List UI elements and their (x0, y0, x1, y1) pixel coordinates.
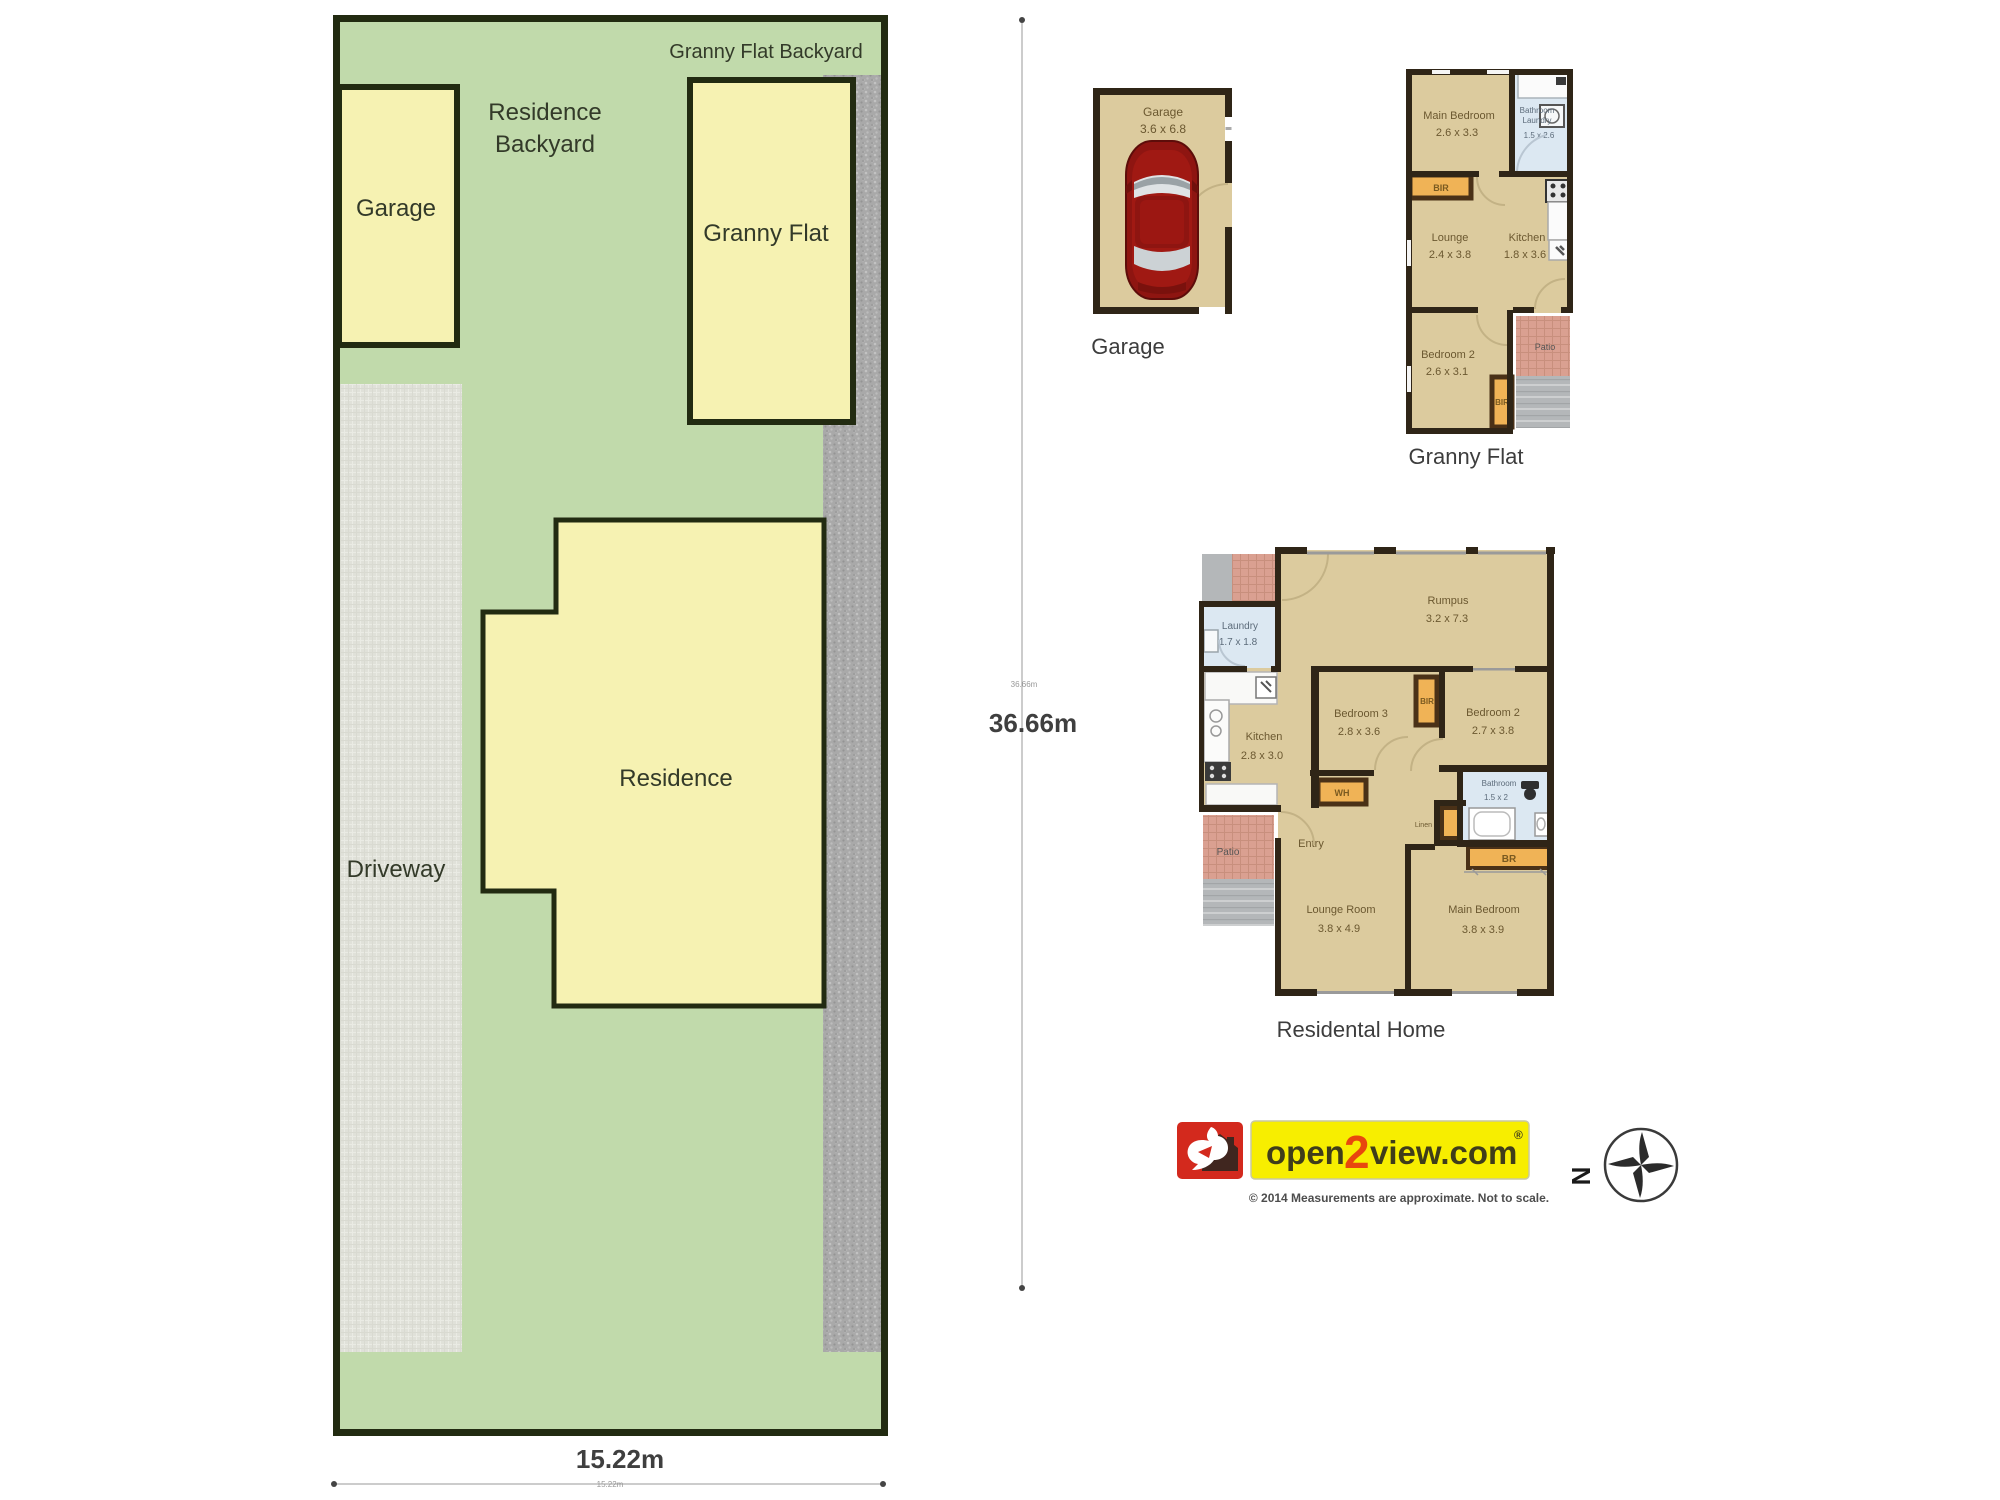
svg-text:1.7 x 1.8: 1.7 x 1.8 (1219, 637, 1258, 648)
svg-text:Granny Flat Backyard: Granny Flat Backyard (669, 41, 862, 63)
svg-text:Residence: Residence (619, 765, 732, 792)
svg-text:2: 2 (1344, 1126, 1370, 1178)
svg-text:Kitchen: Kitchen (1509, 232, 1546, 244)
svg-text:Linen: Linen (1415, 822, 1432, 829)
svg-text:© 2014 Measurements are approx: © 2014 Measurements are approximate. Not… (1249, 1191, 1549, 1205)
svg-text:Bedroom 2: Bedroom 2 (1466, 707, 1520, 719)
svg-text:Patio: Patio (1217, 847, 1240, 858)
svg-text:Residence: Residence (488, 99, 601, 126)
svg-text:BIR: BIR (1420, 697, 1434, 706)
svg-text:Granny Flat: Granny Flat (1409, 444, 1524, 469)
svg-text:Kitchen: Kitchen (1246, 731, 1283, 743)
svg-text:BR: BR (1502, 854, 1517, 865)
svg-text:1.8 x 3.6: 1.8 x 3.6 (1504, 249, 1546, 261)
svg-text:Laundry: Laundry (1523, 116, 1552, 125)
svg-text:Bathroom: Bathroom (1482, 779, 1517, 788)
svg-text:Lounge Room: Lounge Room (1306, 904, 1375, 916)
svg-text:2.7 x 3.8: 2.7 x 3.8 (1472, 725, 1514, 737)
svg-text:2.6 x 3.1: 2.6 x 3.1 (1426, 366, 1468, 378)
svg-text:2.4 x 3.8: 2.4 x 3.8 (1429, 249, 1471, 261)
svg-text:2.8 x 3.6: 2.8 x 3.6 (1338, 726, 1380, 738)
svg-text:open: open (1266, 1134, 1345, 1171)
svg-text:BIR: BIR (1433, 183, 1449, 193)
svg-text:2.8 x 3.0: 2.8 x 3.0 (1241, 750, 1283, 762)
svg-text:Garage: Garage (1091, 334, 1164, 359)
svg-text:15.22m: 15.22m (576, 1444, 664, 1474)
svg-text:Laundry: Laundry (1222, 621, 1258, 632)
svg-text:2.6 x 3.3: 2.6 x 3.3 (1436, 127, 1478, 139)
svg-text:N: N (1566, 1167, 1596, 1186)
svg-text:Garage: Garage (356, 195, 436, 222)
svg-text:view.com: view.com (1370, 1134, 1517, 1171)
svg-text:3.6 x 6.8: 3.6 x 6.8 (1140, 122, 1186, 136)
svg-text:15.22m: 15.22m (597, 1480, 624, 1489)
svg-text:Rumpus: Rumpus (1428, 595, 1469, 607)
svg-text:Main Bedroom: Main Bedroom (1448, 904, 1520, 916)
svg-text:®: ® (1514, 1128, 1523, 1142)
svg-text:Entry: Entry (1298, 838, 1324, 850)
svg-text:Patio: Patio (1535, 342, 1556, 352)
svg-text:Driveway: Driveway (347, 856, 446, 883)
svg-text:3.2 x 7.3: 3.2 x 7.3 (1426, 613, 1468, 625)
svg-text:36.66m: 36.66m (989, 708, 1077, 738)
svg-text:3.8 x 3.9: 3.8 x 3.9 (1462, 924, 1504, 936)
svg-text:1.5 x 2: 1.5 x 2 (1484, 793, 1509, 802)
svg-text:Bedroom 3: Bedroom 3 (1334, 708, 1388, 720)
svg-text:Main Bedroom: Main Bedroom (1423, 110, 1495, 122)
svg-text:Residental Home: Residental Home (1277, 1017, 1446, 1042)
svg-text:36.66m: 36.66m (1011, 680, 1038, 689)
svg-text:Bedroom 2: Bedroom 2 (1421, 349, 1475, 361)
svg-text:3.8 x 4.9: 3.8 x 4.9 (1318, 923, 1360, 935)
svg-text:Backyard: Backyard (495, 131, 595, 158)
svg-text:Granny Flat: Granny Flat (703, 220, 829, 247)
svg-text:Lounge: Lounge (1432, 232, 1469, 244)
svg-text:WH: WH (1335, 788, 1350, 798)
svg-text:Bathroom: Bathroom (1520, 106, 1555, 115)
svg-text:Garage: Garage (1143, 105, 1183, 119)
